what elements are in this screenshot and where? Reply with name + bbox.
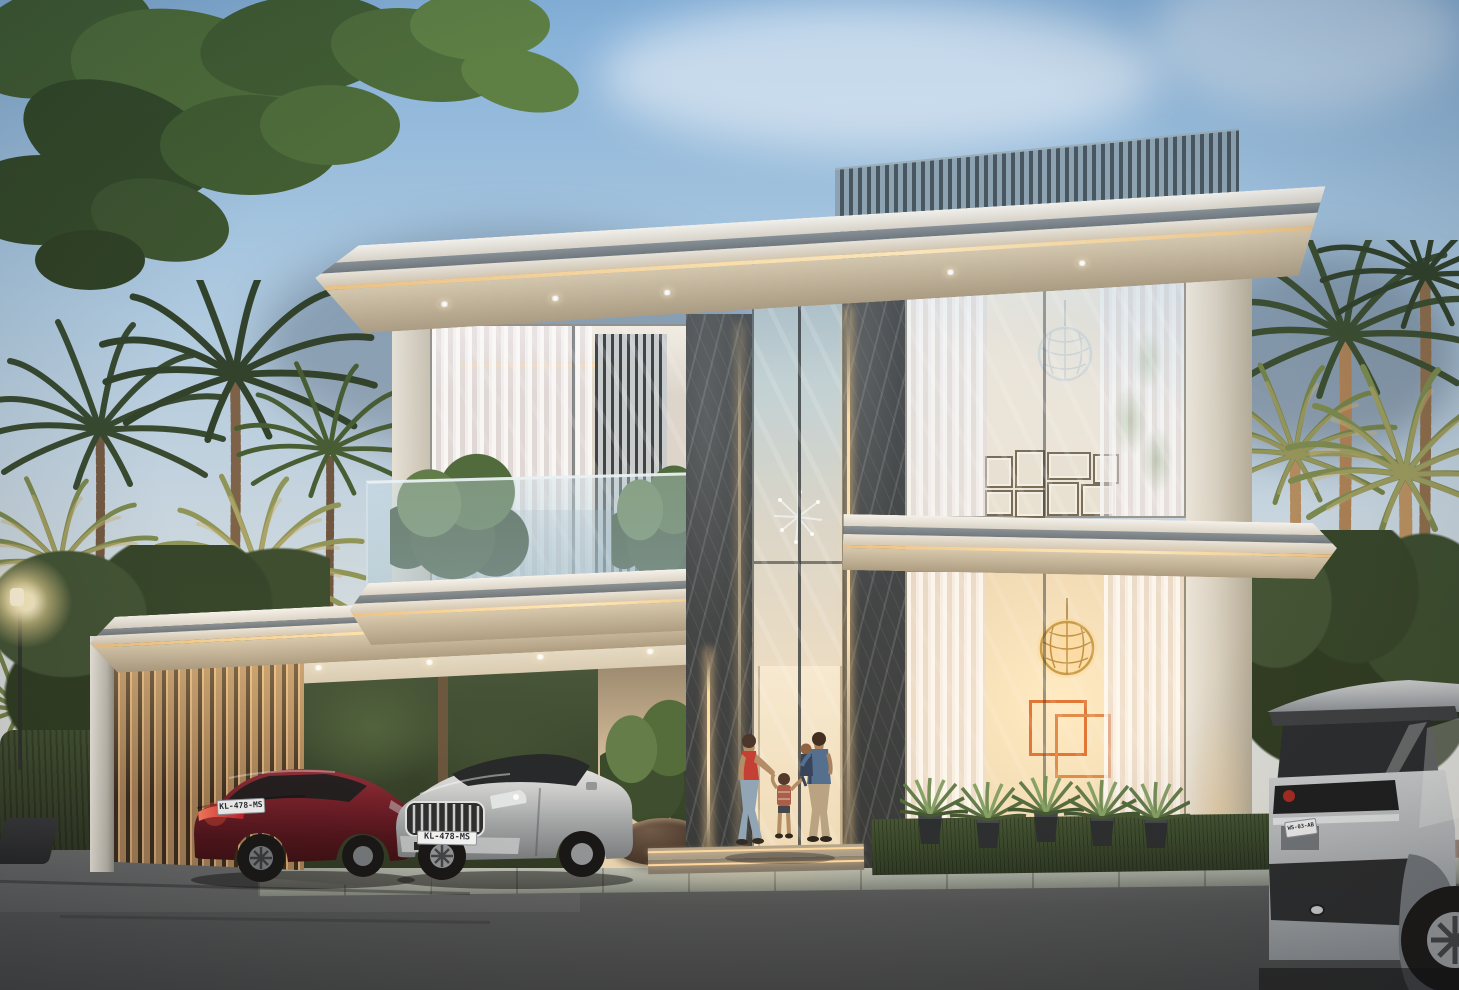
car-glass [452, 754, 590, 786]
silver-sedan-plate: KL-478-MS [417, 830, 477, 845]
woman-walking [736, 734, 775, 845]
potted-agave-row [900, 762, 1190, 866]
carport-left-pillar [90, 636, 114, 872]
villa-dusk-rendering: KL-478-MS KL-478-MS [0, 0, 1459, 990]
mirror [586, 782, 597, 790]
upper-right-window [905, 268, 1186, 518]
glass-reflection-streaks [907, 270, 1184, 516]
downlight [534, 654, 545, 661]
mid-floor-fascia [842, 514, 1337, 579]
led-strip-vertical [847, 308, 850, 848]
red-sedan [185, 742, 415, 892]
downlight [645, 648, 656, 655]
downlight [438, 301, 449, 308]
red-sedan-plate: KL-478-MS [217, 798, 266, 815]
downlight [661, 289, 672, 296]
silver-sedan [390, 740, 640, 890]
child [773, 773, 804, 839]
man-holding-toddler [800, 732, 832, 842]
downlight [944, 269, 955, 276]
family-at-entrance [718, 722, 844, 868]
street-lamp-head [10, 588, 24, 606]
downlight [423, 659, 434, 666]
tree-foliage [0, 0, 580, 290]
downlight [1076, 260, 1087, 267]
led-strip-vertical [707, 650, 710, 862]
downlight [313, 664, 324, 671]
overhanging-tree-branch [0, 0, 580, 300]
